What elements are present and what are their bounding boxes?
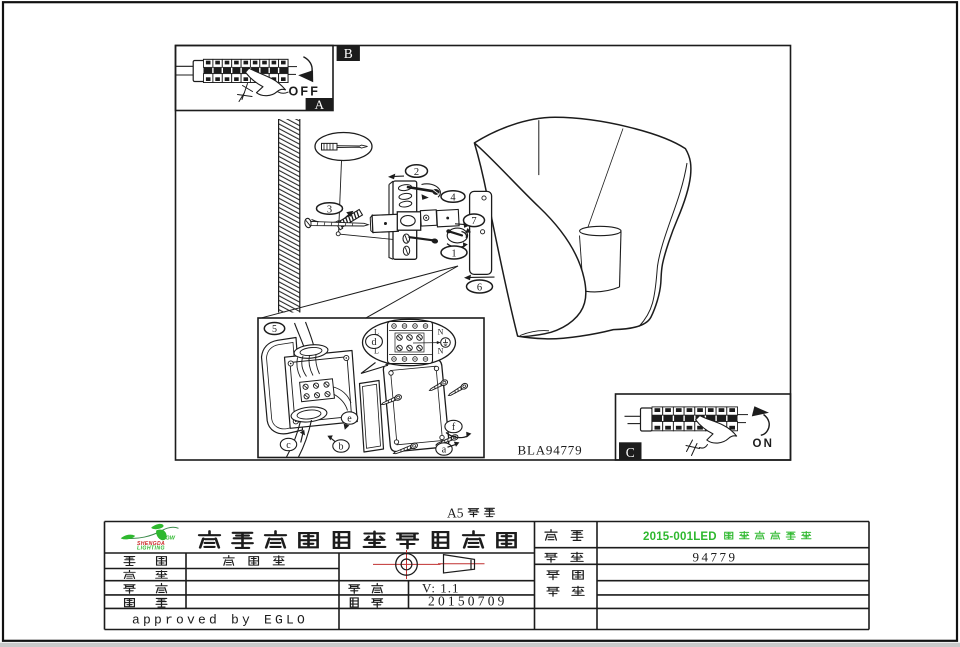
svg-text:94779: 94779 [693, 550, 738, 565]
svg-text:a: a [442, 445, 447, 456]
svg-text:e: e [347, 414, 352, 425]
svg-text:b: b [339, 442, 344, 453]
svg-text:B: B [344, 46, 353, 61]
svg-text:GW: GW [166, 536, 176, 542]
svg-text:1: 1 [451, 248, 456, 259]
svg-text:BLA94779: BLA94779 [518, 443, 583, 458]
svg-text:7: 7 [471, 216, 476, 227]
svg-text:2015-001LED: 2015-001LED [643, 531, 717, 543]
svg-text:LIGHTING: LIGHTING [137, 546, 165, 552]
svg-text:A: A [315, 97, 325, 112]
svg-text:approved by EGLO: approved by EGLO [132, 612, 308, 627]
svg-text:6: 6 [477, 282, 482, 293]
svg-text:N: N [438, 347, 444, 356]
svg-text:ON: ON [753, 438, 775, 450]
svg-text:2: 2 [414, 167, 419, 178]
svg-text:5: 5 [272, 324, 277, 335]
svg-text:C: C [626, 445, 635, 460]
svg-text:c: c [286, 440, 291, 451]
svg-text:L: L [374, 328, 379, 337]
svg-text:L: L [374, 347, 379, 356]
svg-text:A5: A5 [447, 506, 464, 521]
svg-text:3: 3 [327, 204, 332, 215]
svg-text:20150709: 20150709 [428, 594, 508, 609]
svg-text:N: N [438, 328, 444, 337]
svg-text:4: 4 [450, 192, 456, 203]
